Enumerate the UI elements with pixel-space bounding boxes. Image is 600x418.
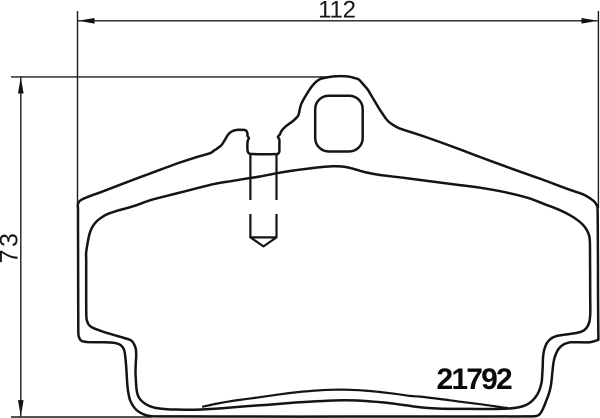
svg-text:112: 112	[318, 0, 356, 24]
svg-text:21792: 21792	[437, 363, 513, 396]
svg-text:73: 73	[0, 231, 24, 264]
